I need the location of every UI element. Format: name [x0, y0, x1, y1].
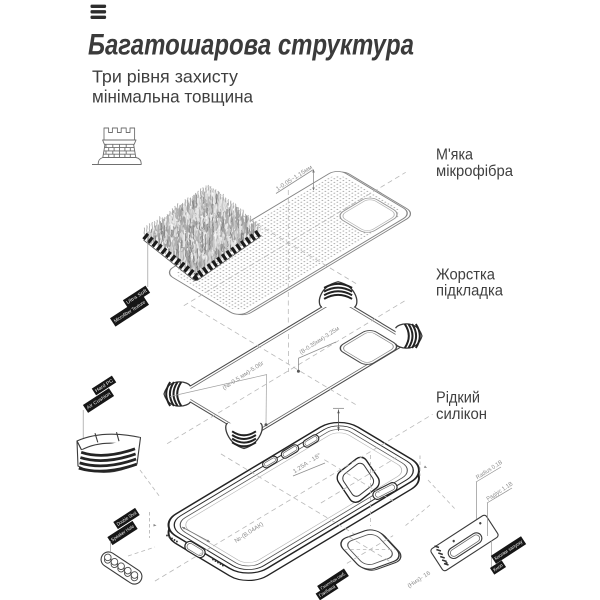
- svg-text:мінімальна товщина: мінімальна товщина: [92, 87, 253, 107]
- svg-text:Три рівня захисту: Три рівня захисту: [92, 67, 238, 87]
- svg-text:силікон: силікон: [436, 406, 487, 423]
- svg-text:Жорстка: Жорстка: [436, 267, 495, 284]
- svg-text:підкладка: підкладка: [436, 283, 503, 300]
- svg-text:Багатошарова структура: Багатошарова структура: [88, 29, 414, 62]
- svg-text:Рідкий: Рідкий: [436, 390, 480, 407]
- svg-text:М'яка: М'яка: [436, 147, 473, 164]
- svg-text:мікрофібра: мікрофібра: [436, 163, 513, 180]
